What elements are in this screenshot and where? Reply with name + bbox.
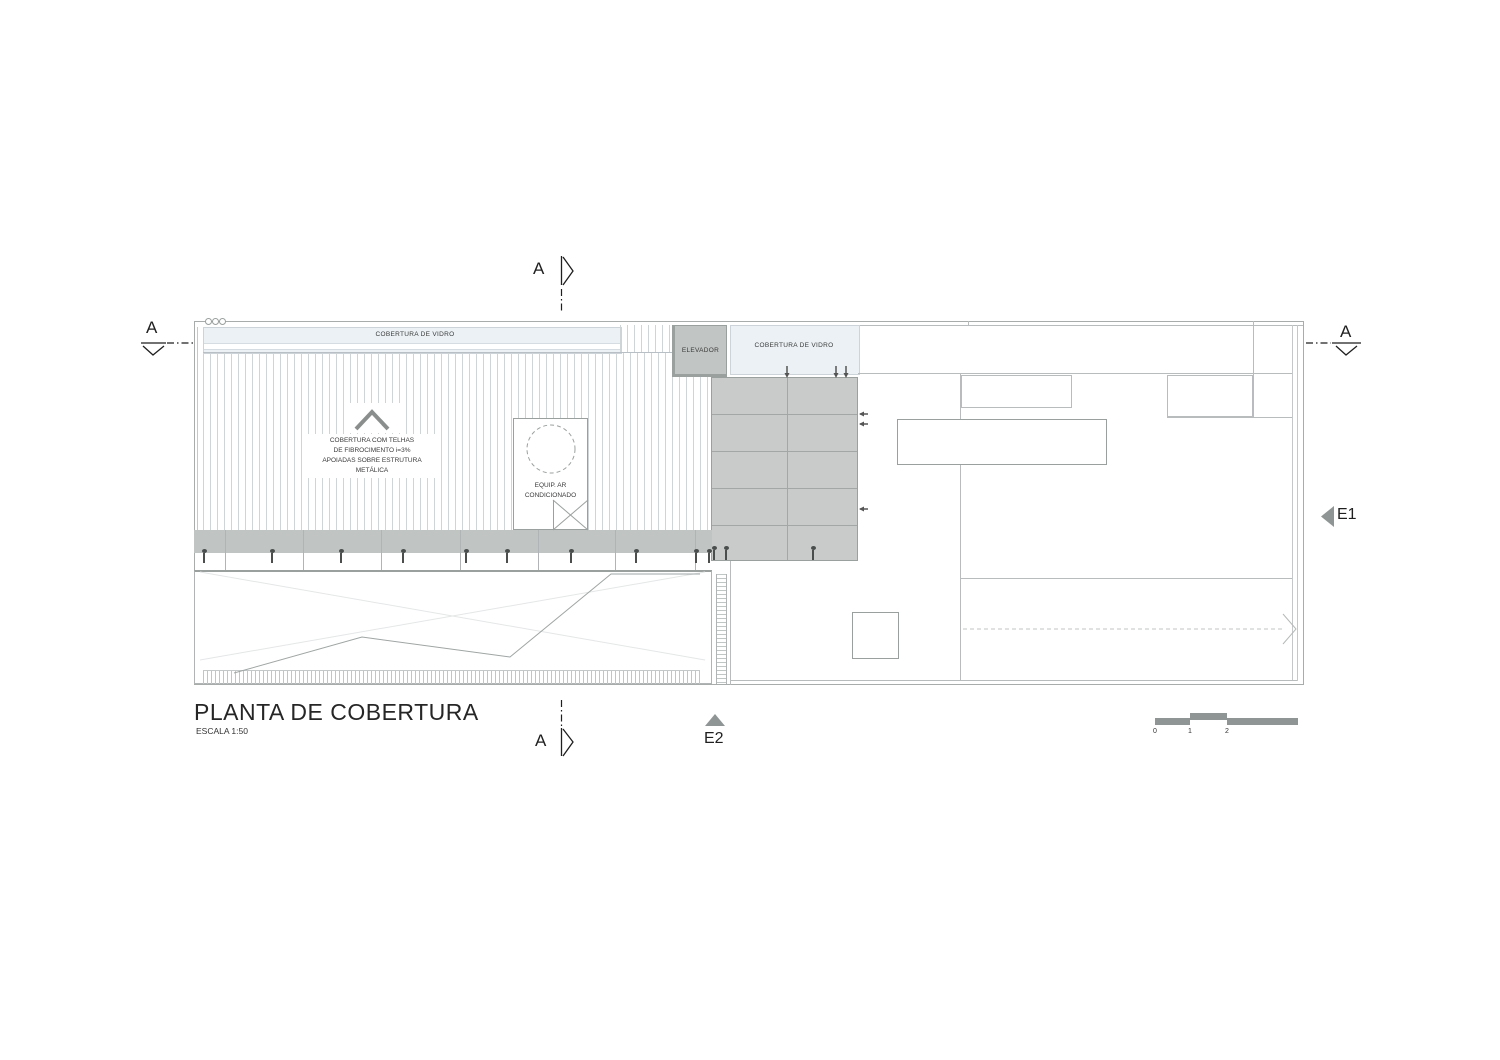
ac-note: EQUIP. AR CONDICIONADO: [513, 481, 588, 501]
section-marker-right: [1306, 343, 1361, 355]
roof-box-4: [852, 612, 899, 659]
guardrail-post-figure: [812, 550, 814, 560]
fibro-roof-hatch-upper: [620, 325, 672, 352]
scale-segment: [1190, 713, 1227, 720]
drawing-title: PLANTA DE COBERTURA: [194, 699, 479, 726]
top-wall-joint: [968, 321, 969, 326]
scale-tick: 2: [1225, 728, 1229, 735]
plaza-wall-line: [1167, 417, 1292, 418]
plan-right-edge: [1303, 321, 1304, 685]
scale-segment: [1155, 718, 1190, 725]
deck-grid-line: [787, 378, 788, 560]
fibro-roof-hatch: [203, 352, 711, 531]
deck-grid-line: [712, 488, 857, 489]
glass-roof-1-label: COBERTURA DE VIDRO: [300, 331, 530, 338]
drawing-scale: ESCALA 1:50: [196, 726, 248, 736]
elevation-label-e1: E1: [1337, 506, 1357, 524]
guardrail-post-figure: [713, 550, 715, 560]
section-label-bottom: A: [535, 731, 546, 751]
plaza-wall-line: [1253, 321, 1254, 417]
section-marker-top: [562, 256, 574, 312]
plan-right-inner-edge-1: [1297, 325, 1298, 681]
plan-bottom-edge: [194, 684, 1303, 685]
roof-note: COBERTURA COM TELHAS DE FIBROCIMENTO i=3…: [305, 434, 439, 478]
section-label-top: A: [533, 259, 544, 279]
guardrail-post-figure: [570, 553, 572, 563]
graphic-scale-bar: 0 1 2: [1155, 713, 1298, 739]
guardrail-post-figure: [402, 553, 404, 563]
plan-left-inner-edge: [197, 327, 198, 553]
guardrail-post-figure: [465, 553, 467, 563]
glass-roof-2-label: COBERTURA DE VIDRO: [734, 342, 854, 349]
roof-box-3: [897, 419, 1107, 465]
edge-band-joint-line: [303, 530, 304, 570]
elevator-box: ELEVADOR: [672, 325, 727, 377]
elevator-label: ELEVADOR: [682, 347, 719, 354]
terrace-deck: [711, 377, 858, 561]
deck-left-arrows: [859, 412, 868, 512]
plaza-wall-line: [960, 578, 1292, 579]
guardrail-post-figure: [695, 553, 697, 563]
section-marker-bottom: [562, 700, 574, 756]
glass-roof-strip-2: [730, 325, 860, 375]
deck-grid-line: [712, 414, 857, 415]
guardrail-post-figure: [340, 553, 342, 563]
scale-tick: 1: [1188, 728, 1192, 735]
guardrail-post-figure: [725, 550, 727, 560]
edge-band-joint-line: [460, 530, 461, 570]
edge-band-joint-line: [225, 530, 226, 570]
plan-top-edge: [194, 321, 1303, 322]
dashed-guide-arrow: [963, 614, 1296, 644]
plaza-bottom-inner-edge: [730, 680, 1297, 681]
section-label-left: A: [146, 318, 157, 338]
plan-right-inner-edge-2: [1292, 325, 1293, 681]
roof-box-2: [1167, 375, 1253, 417]
deck-grid-line: [712, 451, 857, 452]
plan-top-inner-edge: [858, 325, 1303, 326]
guardrail-post-figure: [271, 553, 273, 563]
e1-triangle-icon: [1321, 506, 1334, 527]
scale-tick: 0: [1153, 728, 1157, 735]
scale-segment: [1227, 718, 1298, 725]
glass-roof-mullion-band: [204, 343, 621, 350]
ridge-note-gap: [345, 403, 401, 433]
plaza-band-line: [858, 373, 1292, 374]
vent-circle: [205, 318, 212, 325]
vent-circle: [219, 318, 226, 325]
edge-band-joint-line: [615, 530, 616, 570]
section-marker-left: [141, 343, 193, 355]
guardrail-post-figure: [635, 553, 637, 563]
edge-band-joint-line: [381, 530, 382, 570]
vent-circle: [212, 318, 219, 325]
plaza-wall-line: [730, 561, 731, 685]
guardrail-post-figure: [506, 553, 508, 563]
canopy-bottom-hatch: [203, 670, 700, 684]
edge-band-joint-line: [538, 530, 539, 570]
section-label-right: A: [1340, 322, 1351, 342]
deck-grid-line: [712, 525, 857, 526]
elevation-label-e2: E2: [704, 730, 724, 748]
lower-canopy-area: [194, 570, 712, 684]
e2-triangle-icon: [705, 714, 725, 726]
roof-box-1: [961, 375, 1072, 408]
access-ladder-strip: [716, 574, 727, 684]
ac-cross-box: [553, 500, 588, 530]
guardrail-post-figure: [203, 553, 205, 563]
drawing-sheet: COBERTURA DE VIDRO COBERTURA COM TELHAS …: [0, 0, 1500, 1060]
guardrail-post-figure: [708, 553, 710, 563]
